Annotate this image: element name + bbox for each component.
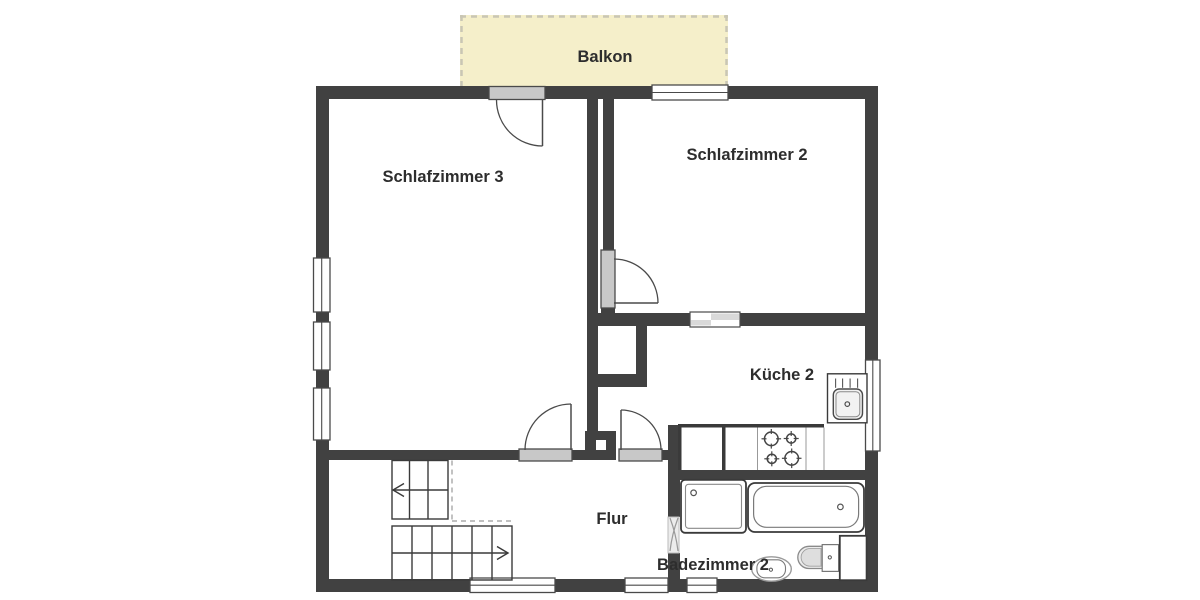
svg-text:Küche 2: Küche 2 xyxy=(750,366,814,384)
svg-text:Schlafzimmer 3: Schlafzimmer 3 xyxy=(382,168,503,186)
svg-text:Badezimmer 2: Badezimmer 2 xyxy=(657,556,769,574)
svg-text:Balkon: Balkon xyxy=(577,48,632,66)
svg-text:Schlafzimmer 2: Schlafzimmer 2 xyxy=(686,146,807,164)
svg-text:Flur: Flur xyxy=(596,510,628,528)
